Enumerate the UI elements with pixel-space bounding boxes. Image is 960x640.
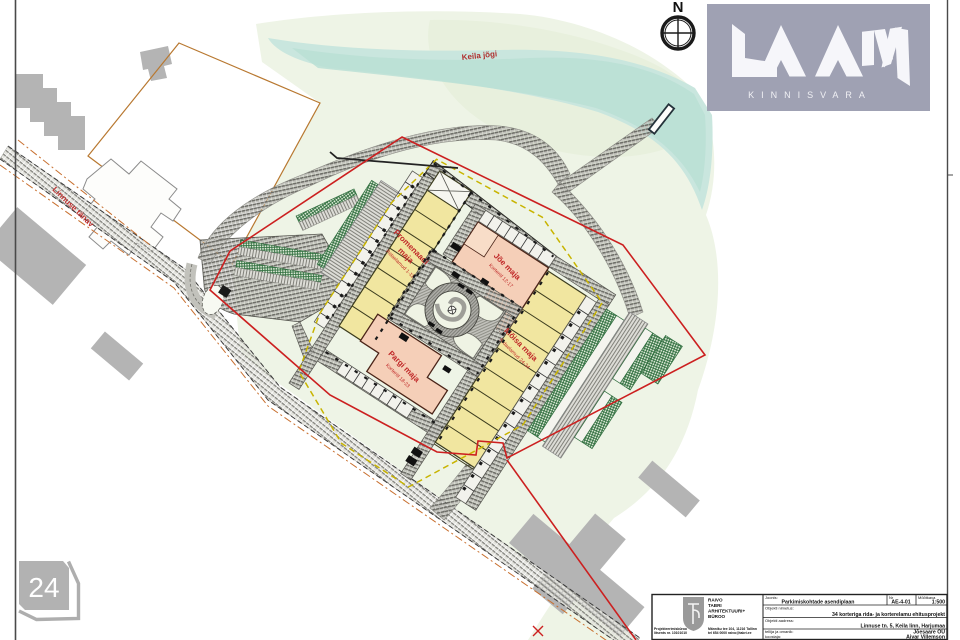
svg-text:AE-4-01: AE-4-01: [891, 600, 910, 606]
svg-text:34 korteriga rida- ja korterel: 34 korteriga rida- ja korterelamu ehitus…: [832, 612, 945, 618]
svg-text:N: N: [673, 0, 684, 16]
svg-text:TABRI: TABRI: [708, 603, 722, 608]
svg-text:Joonis:: Joonis:: [765, 595, 778, 600]
svg-text:24: 24: [28, 572, 59, 603]
svg-text:KINNISVARA: KINNISVARA: [748, 90, 872, 100]
svg-text:litsents nr. 10101010: litsents nr. 10101010: [654, 631, 687, 635]
svg-text:ARHITEKTUURI+: ARHITEKTUURI+: [708, 609, 745, 614]
svg-text:1:500: 1:500: [932, 600, 945, 606]
svg-text:koostaja:: koostaja:: [765, 634, 781, 639]
svg-text:RAIVO: RAIVO: [708, 598, 723, 603]
svg-text:Objekti nimetus:: Objekti nimetus:: [765, 606, 794, 611]
svg-text:tel 654 0000 raivo@tabri.ee: tel 654 0000 raivo@tabri.ee: [708, 631, 752, 635]
svg-text:Aivar Villemson: Aivar Villemson: [906, 635, 945, 640]
svg-text:BÜROO: BÜROO: [708, 613, 726, 619]
svg-text:Objekti aadress:: Objekti aadress:: [765, 618, 794, 623]
